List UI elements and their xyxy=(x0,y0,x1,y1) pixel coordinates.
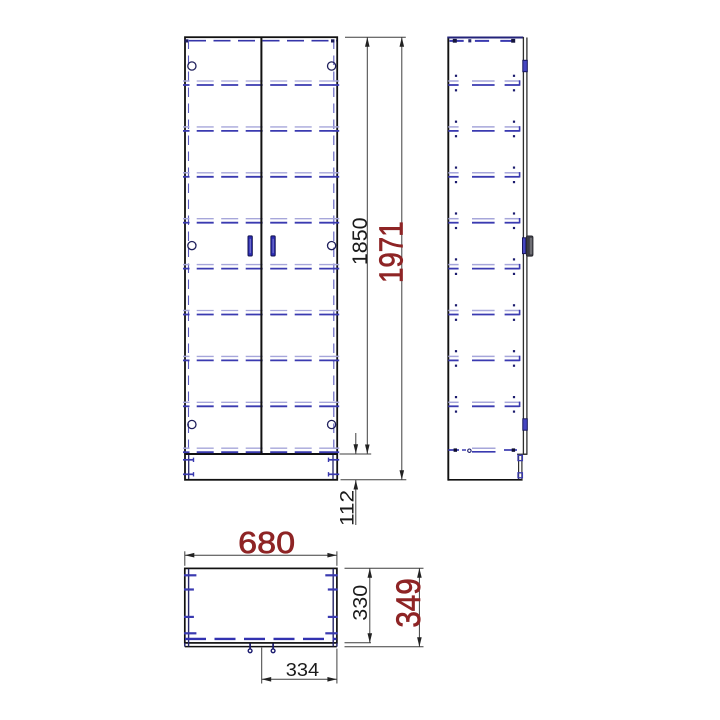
svg-text:334: 334 xyxy=(286,661,320,681)
svg-text:349: 349 xyxy=(389,578,427,627)
svg-text:112: 112 xyxy=(337,490,358,526)
svg-text:1971: 1971 xyxy=(373,221,410,283)
svg-text:680: 680 xyxy=(238,525,295,559)
svg-text:330: 330 xyxy=(350,585,372,621)
svg-text:1850: 1850 xyxy=(349,217,372,265)
